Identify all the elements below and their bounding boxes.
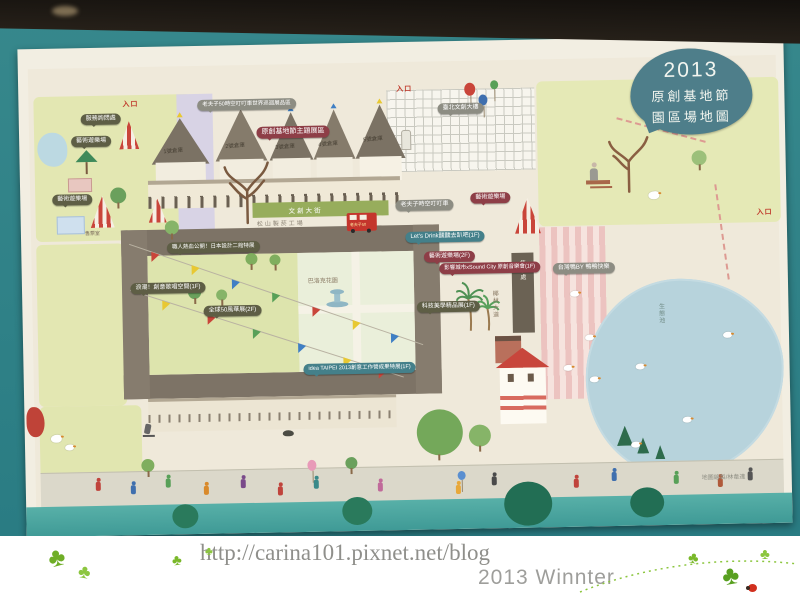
person-figure bbox=[748, 471, 753, 480]
label-wave-song: 浪潮！創意歌唱空間(1F) bbox=[130, 282, 205, 295]
skateboard-icon bbox=[143, 435, 155, 437]
label-taipei-new-horizon: 臺北文創大樓 bbox=[437, 102, 483, 114]
entrance-mark: 入口 bbox=[757, 207, 773, 217]
blue-tree-icon bbox=[37, 132, 68, 167]
dark-wall-band bbox=[0, 0, 800, 44]
map-title-line2: 原創基地節 bbox=[630, 84, 752, 105]
pennant-icon bbox=[376, 98, 382, 103]
person-figure bbox=[314, 480, 319, 489]
bare-tree-icon bbox=[217, 152, 276, 225]
stall-table bbox=[68, 178, 92, 192]
person-figure bbox=[278, 486, 283, 495]
person-figure bbox=[241, 479, 246, 488]
person-figure bbox=[166, 479, 171, 488]
person-figure bbox=[492, 476, 497, 485]
person-head bbox=[592, 162, 597, 167]
eco-pond-label: 生態池 bbox=[656, 303, 665, 324]
pennant-icon bbox=[330, 103, 336, 108]
map-title-year: 2013 bbox=[630, 57, 752, 83]
map-title-bubble: 2013 原創基地節 園區場地圖 bbox=[630, 47, 754, 135]
duck-icon bbox=[585, 334, 594, 340]
blog-url: http://carina101.pixnet.net/blog bbox=[200, 540, 490, 566]
clover-icon: ♣ bbox=[44, 540, 69, 574]
grass-area-midleft bbox=[36, 243, 127, 407]
duck-icon bbox=[570, 291, 579, 297]
house-window bbox=[528, 374, 534, 382]
label-taiwan-duck: 台灣鴨BY 鴨鴨快樂 bbox=[553, 262, 615, 274]
caption-area: ♣ ♣ ♣ ♣ http://carina101.pixnet.net/blog… bbox=[0, 536, 800, 600]
bus-wheel bbox=[367, 229, 371, 233]
umbrella-pole bbox=[86, 162, 88, 174]
map-board: 1號倉庫 2號倉庫 3號倉庫 4號倉庫 5號倉庫 文創大街 bbox=[17, 35, 792, 536]
cat-icon bbox=[283, 430, 294, 436]
bus-label: 老夫子50 bbox=[350, 222, 367, 228]
label-idea-taipei: idea TAIPEI 2013創意工作營成果特展(1F) bbox=[303, 362, 415, 375]
label-tech-aesthetics: 科技美學精品展(1F) bbox=[417, 301, 480, 313]
picnic-blanket bbox=[57, 216, 85, 235]
goose-icon bbox=[648, 191, 659, 199]
ticket-room-label: 售票室 bbox=[85, 230, 100, 237]
person-figure bbox=[674, 475, 679, 484]
label-service-info: 服務詢問處 bbox=[81, 113, 121, 125]
label-craftsman-expo: 職人熱血公開！日本設計二館特展 bbox=[167, 241, 260, 253]
duck-icon bbox=[723, 332, 732, 338]
person-figure bbox=[131, 485, 136, 494]
house-window bbox=[508, 374, 514, 382]
clover-icon: ♣ bbox=[76, 561, 92, 585]
duck-icon bbox=[636, 363, 645, 369]
label-art-playground-2f: 藝術遊樂場(2F) bbox=[424, 251, 475, 263]
entrance-mark: 入口 bbox=[396, 84, 412, 94]
person-on-bench bbox=[590, 168, 598, 180]
goose-icon bbox=[51, 435, 62, 443]
duck-icon bbox=[631, 442, 640, 448]
bus-wheel bbox=[351, 229, 355, 233]
map-credit: 地圖繪製/林韋達 bbox=[702, 472, 746, 482]
person-figure bbox=[96, 482, 101, 491]
balloon-icon bbox=[307, 460, 316, 471]
person-figure bbox=[612, 472, 617, 481]
clover-icon: ♣ bbox=[760, 546, 770, 563]
label-lets-drink: Let's Drink醺醺去趴吧(1F) bbox=[405, 230, 484, 243]
label-art-playground: 藝術遊樂場 bbox=[71, 136, 111, 148]
flag-string-icon bbox=[121, 226, 434, 402]
label-omq-expo: 老夫子50時空叮叮車世界巡迴展品區 bbox=[197, 98, 296, 110]
bus-window bbox=[350, 215, 357, 220]
goose-icon bbox=[65, 444, 74, 450]
balloon-icon bbox=[458, 471, 466, 480]
person-figure bbox=[574, 479, 579, 488]
label-sound-city: 影響城市xSound City 原創音樂會(1F) bbox=[439, 261, 540, 274]
balloon-icon bbox=[490, 80, 498, 89]
striped-house-body bbox=[500, 367, 547, 424]
person-figure bbox=[204, 486, 209, 495]
duck-icon bbox=[564, 365, 573, 371]
clover-icon: ♣ bbox=[171, 551, 183, 569]
bench-icon bbox=[586, 180, 610, 184]
label-ding-ding-tram: 老夫子時空叮叮車 bbox=[395, 199, 453, 211]
statue-figure bbox=[401, 130, 411, 150]
entrance-mark: 入口 bbox=[122, 99, 138, 109]
palm-avenue-label: 椰林大道 bbox=[490, 290, 500, 318]
factory-label: 松山製菸工場 bbox=[257, 218, 305, 228]
person-figure bbox=[456, 485, 461, 494]
light-reflection bbox=[52, 6, 78, 16]
duck-icon bbox=[683, 417, 692, 423]
bus-window bbox=[360, 215, 367, 220]
label-art-playground: 藝術遊樂場 bbox=[470, 192, 510, 204]
label-theme-zone: 原創基地節主題展區 bbox=[256, 125, 329, 139]
person-figure bbox=[378, 482, 383, 491]
ladybug-icon bbox=[748, 584, 757, 592]
photo-of-map-sign: 1號倉庫 2號倉庫 3號倉庫 4號倉庫 5號倉庫 文創大街 bbox=[0, 0, 800, 536]
double-decker-bus-icon: 老夫子50 bbox=[347, 213, 377, 232]
clover-icon: ♣ bbox=[205, 544, 213, 558]
duck-icon bbox=[590, 376, 599, 382]
label-fifty-expo: 全球50風華展(2F) bbox=[204, 305, 262, 317]
baroque-garden-label: 巴洛克花園 bbox=[308, 275, 338, 285]
street-label: 文創大街 bbox=[288, 205, 322, 216]
label-art-playground: 藝術遊樂場 bbox=[52, 194, 92, 206]
pennant-icon bbox=[177, 112, 183, 117]
